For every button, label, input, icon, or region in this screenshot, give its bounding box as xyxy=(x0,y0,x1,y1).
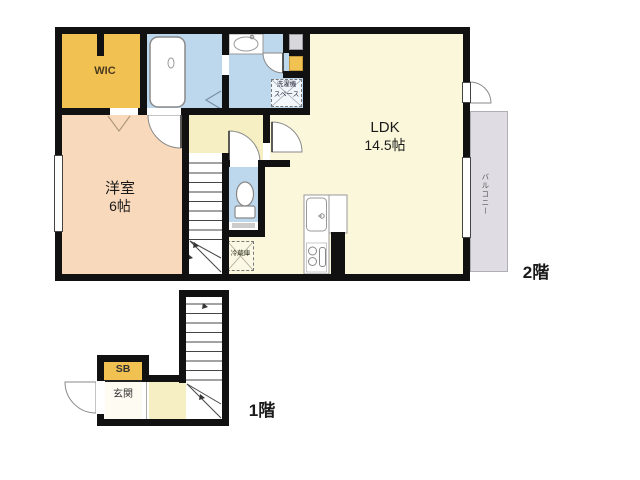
wall-washroom-right xyxy=(303,27,310,115)
wall-bath-right-upper xyxy=(222,34,229,55)
stairs-1f-area xyxy=(186,297,222,419)
wic-label: WIC xyxy=(80,66,130,78)
ldk-balcony-window xyxy=(462,157,471,238)
wall-h108-a xyxy=(62,108,110,115)
shoebox-label: SB xyxy=(104,364,142,375)
wall-hall-ldk xyxy=(263,115,270,143)
storage-box-orange xyxy=(289,56,303,71)
bedroom-size: 6帖 xyxy=(90,199,150,214)
wall-wic-right xyxy=(140,34,147,115)
wall-kitchen-stub xyxy=(331,232,345,274)
floor-plan-canvas: WIC 洋室 6帖 LDK 14.5帖 バルコニー 洗濯機 スペース 冷蔵庫 2… xyxy=(0,0,640,480)
balcony-label: バルコニー xyxy=(481,164,489,224)
entrance-step-line xyxy=(146,382,147,419)
wall-toilet-top-left xyxy=(222,160,230,167)
fridge-label: 冷蔵庫 xyxy=(227,251,254,258)
laundry-label-line2: スペース xyxy=(271,92,302,99)
storage-box-gray xyxy=(289,34,303,50)
entrance-label: 玄関 xyxy=(104,390,142,401)
hall-ldk-opening xyxy=(263,143,270,160)
door-arc-entry xyxy=(65,382,96,413)
floor1-label: 1階 xyxy=(240,402,284,420)
wall-2f-right xyxy=(463,27,470,281)
toilet-door-opening xyxy=(230,160,258,167)
wall-toilet-bottom xyxy=(222,230,265,237)
wall-toilet-right xyxy=(258,167,265,237)
wall-h108-c xyxy=(181,108,310,115)
wall-2f-bottom xyxy=(55,274,470,281)
hall-1f xyxy=(149,382,186,419)
toilet-shelf-counter xyxy=(232,223,255,228)
wall-stairs1f-left xyxy=(179,290,186,383)
wall-hall1f-top xyxy=(142,375,186,382)
bathroom xyxy=(147,34,222,108)
wall-1f-bottom xyxy=(97,419,229,426)
bedroom-name: 洋室 xyxy=(90,181,150,197)
wall-toilet-top-right xyxy=(258,160,290,167)
entrance-room xyxy=(104,382,142,419)
toilet-room xyxy=(229,167,258,222)
door-arc-ldk-exit xyxy=(470,82,491,103)
wall-bedroom-right xyxy=(182,115,189,274)
bedroom-window xyxy=(54,155,63,232)
wall-storage-mid xyxy=(289,50,303,56)
wall-storage-bottom xyxy=(283,71,303,78)
wall-h108-b xyxy=(138,108,147,115)
wic-door-opening xyxy=(110,108,138,115)
wall-2f-top xyxy=(55,27,470,34)
laundry-label-line1: 洗濯機 xyxy=(271,82,302,89)
wall-2f-left xyxy=(55,27,62,281)
wall-wic-stub xyxy=(97,34,104,56)
wall-stairs1f-right xyxy=(222,290,229,426)
ldk-size: 14.5帖 xyxy=(345,138,425,153)
ldk-exit-door-leaf xyxy=(462,82,471,103)
bedroom-door-opening xyxy=(147,108,181,115)
stairs-2f-area xyxy=(189,153,222,274)
bath-door-opening xyxy=(222,55,229,75)
ldk-name: LDK xyxy=(345,120,425,136)
floor2-label: 2階 xyxy=(514,264,558,282)
